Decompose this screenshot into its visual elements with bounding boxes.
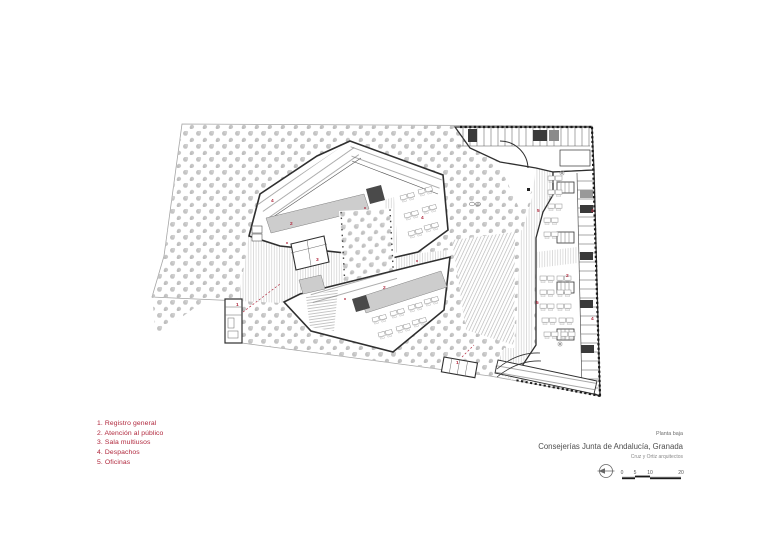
scale-tick: 10 [647, 470, 653, 476]
room-number-label: 2 [566, 273, 569, 279]
room-number-label: 4 [421, 215, 424, 221]
floor-plan-page: 424321155244 051020 1. Registro general2… [0, 0, 780, 536]
fountain-icon [559, 170, 565, 176]
scale-tick: 5 [634, 470, 637, 476]
room-number-label: 1 [236, 302, 239, 308]
legend-item: 5. Oficinas [97, 458, 163, 468]
olive-grove-sw-patch [152, 297, 208, 336]
room-number-label: 4 [591, 316, 594, 322]
room-number-label: 3 [316, 257, 319, 263]
north-wing-rooms [458, 128, 590, 146]
gate-building [225, 299, 242, 343]
central-patio [339, 208, 396, 281]
legend-item: 2. Atención al público [97, 429, 163, 439]
plan-legend: 1. Registro general2. Atención al públic… [97, 419, 163, 467]
floor-label: Planta baja [656, 431, 683, 437]
room-number-label: 2 [383, 285, 386, 291]
legend-item: 3. Sala multiusos [97, 438, 163, 448]
scale-tick: 0 [621, 470, 624, 476]
room-number-label: 1 [456, 360, 459, 366]
room-number-label: 2 [290, 221, 293, 227]
room-number-label: 4 [271, 198, 274, 204]
room-number-label: 5 [537, 208, 540, 214]
room-number-label: 4 [591, 208, 594, 214]
scale-bar: 051020 [598, 465, 684, 480]
architects-label: Cruz y Ortiz arquitectos [631, 454, 683, 460]
fountain-icon-2 [557, 341, 563, 347]
scale-tick-labels: 051020 [621, 470, 684, 476]
project-title: Consejerías Junta de Andalucía, Granada [538, 442, 683, 451]
room-number-label: 5 [536, 300, 539, 306]
north-arrow-icon [598, 465, 615, 478]
legend-item: 1. Registro general [97, 419, 163, 429]
legend-item: 4. Despachos [97, 448, 163, 458]
scale-tick: 20 [678, 470, 684, 476]
